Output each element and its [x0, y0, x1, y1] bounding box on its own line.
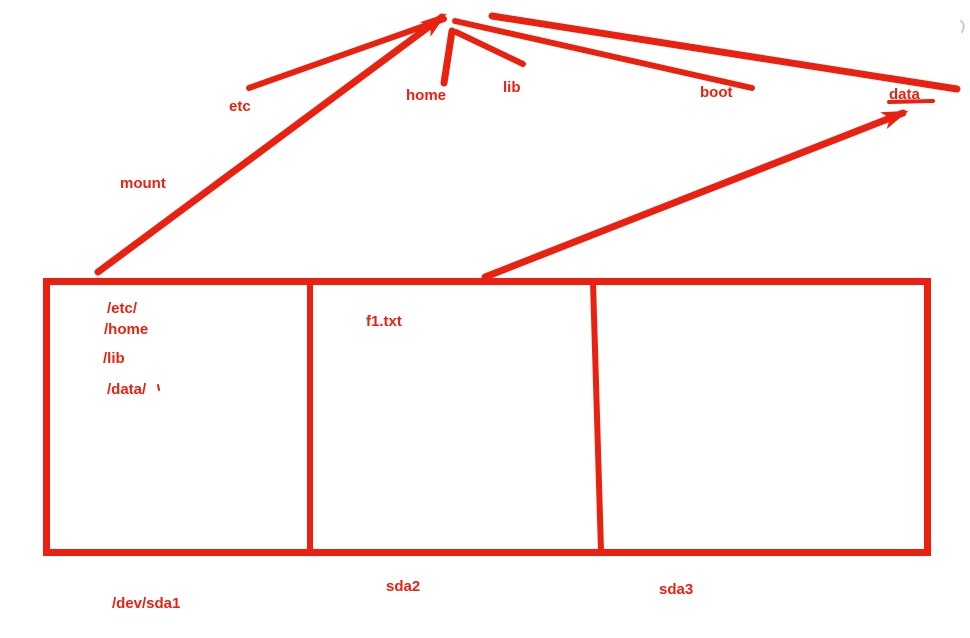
dir-etc: /etc/ — [107, 301, 137, 318]
stray-mark — [961, 21, 964, 32]
etc-line — [249, 19, 444, 88]
data-arrow — [485, 113, 903, 277]
mount-arrow — [98, 17, 442, 272]
dir-lib: /lib — [103, 351, 125, 368]
dir-data: /data/ — [107, 382, 146, 399]
label-mount: mount — [120, 176, 166, 193]
device-label-sda3: sda3 — [659, 582, 693, 599]
home-line — [444, 31, 452, 83]
label-etc: etc — [229, 99, 251, 116]
device-label-sda2: sda2 — [386, 579, 420, 596]
partition-divider-2 — [593, 282, 601, 551]
dir-home: /home — [104, 322, 148, 339]
device-label-sda1: /dev/sda1 — [112, 596, 180, 613]
label-data: data — [889, 87, 920, 104]
data-line — [492, 16, 957, 89]
data-slash-tick — [158, 385, 159, 390]
drawing-layer — [0, 0, 970, 638]
label-boot: boot — [700, 85, 732, 102]
partition-box — [47, 282, 928, 553]
label-home: home — [406, 88, 446, 105]
file-f1txt: f1.txt — [366, 314, 402, 331]
paint-canvas: etc home lib boot data mount /etc/ /home… — [0, 0, 970, 638]
label-lib: lib — [503, 80, 521, 97]
